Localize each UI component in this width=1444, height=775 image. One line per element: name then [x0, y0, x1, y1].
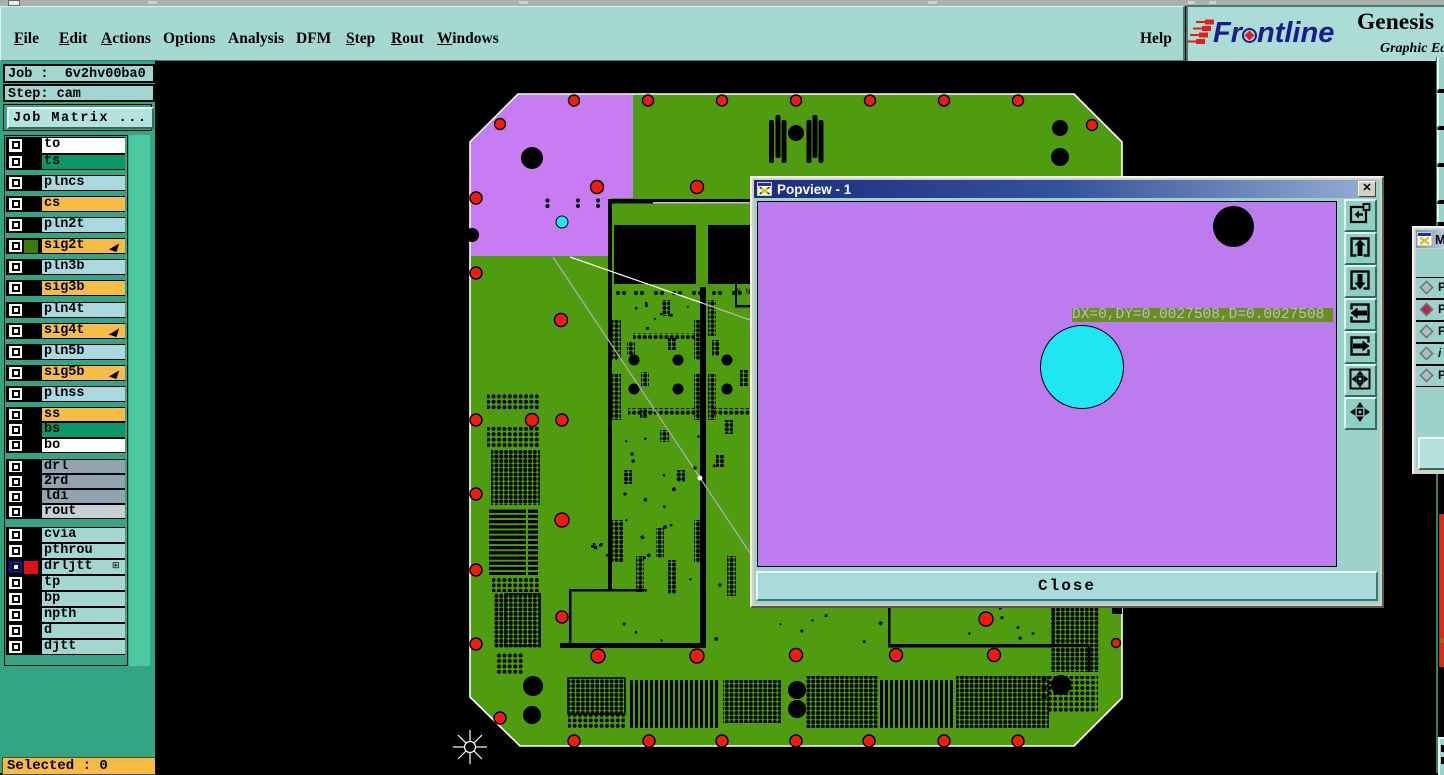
svg-text:N N: N N [736, 288, 751, 297]
